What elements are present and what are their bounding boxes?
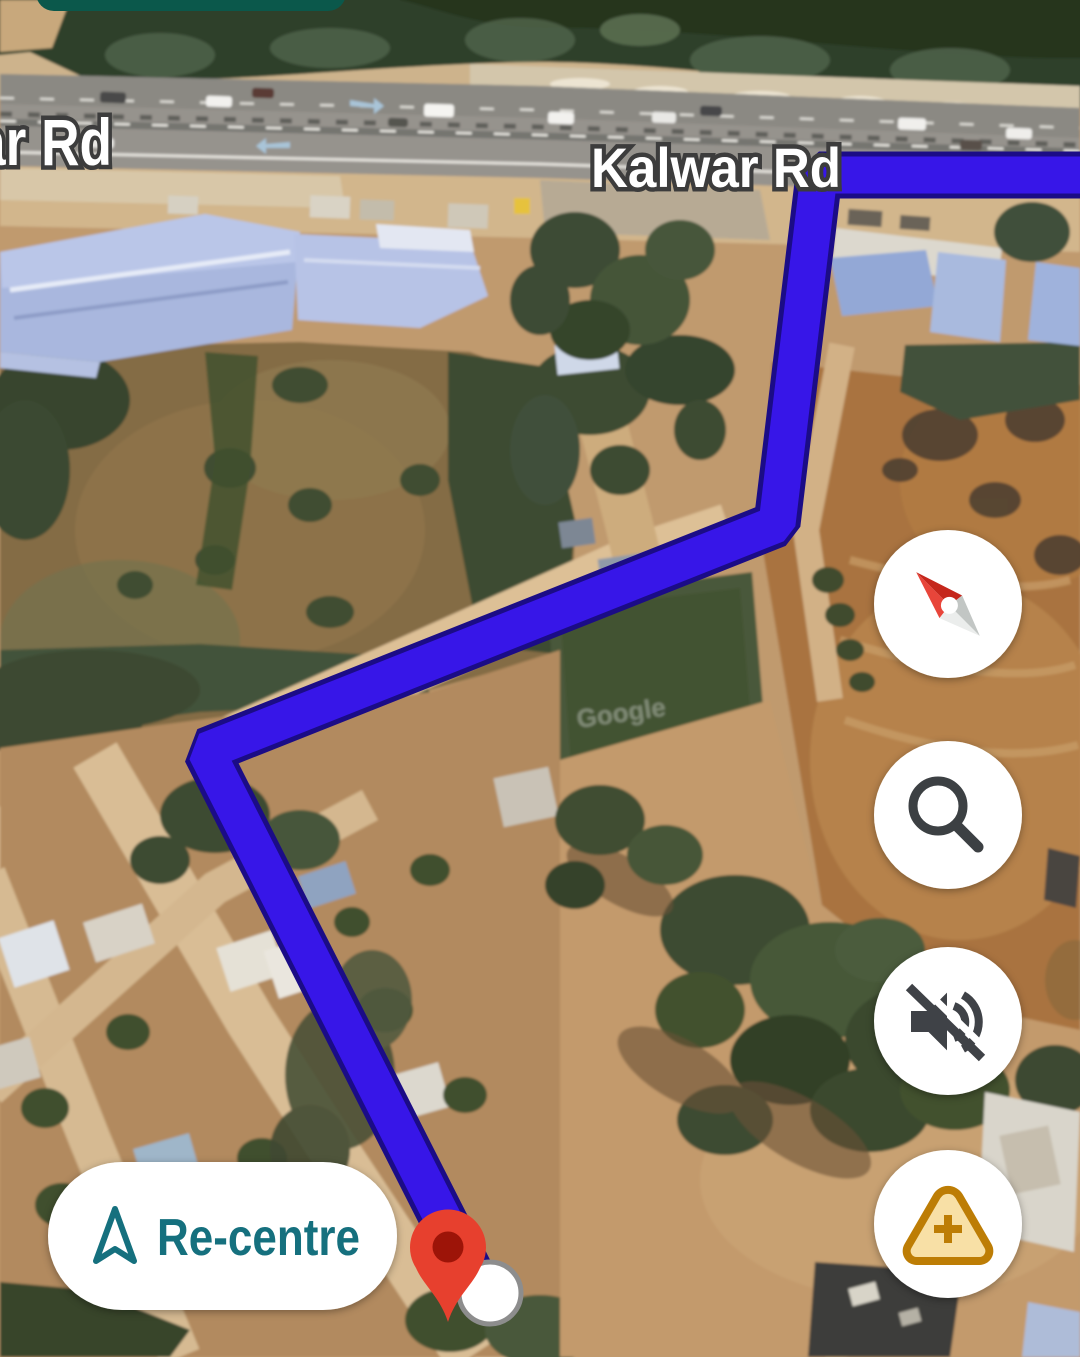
svg-text:ar Rd: ar Rd — [0, 105, 112, 179]
svg-text:Re-centre: Re-centre — [157, 1209, 360, 1267]
svg-text:Kalwar Rd: Kalwar Rd — [591, 136, 841, 199]
